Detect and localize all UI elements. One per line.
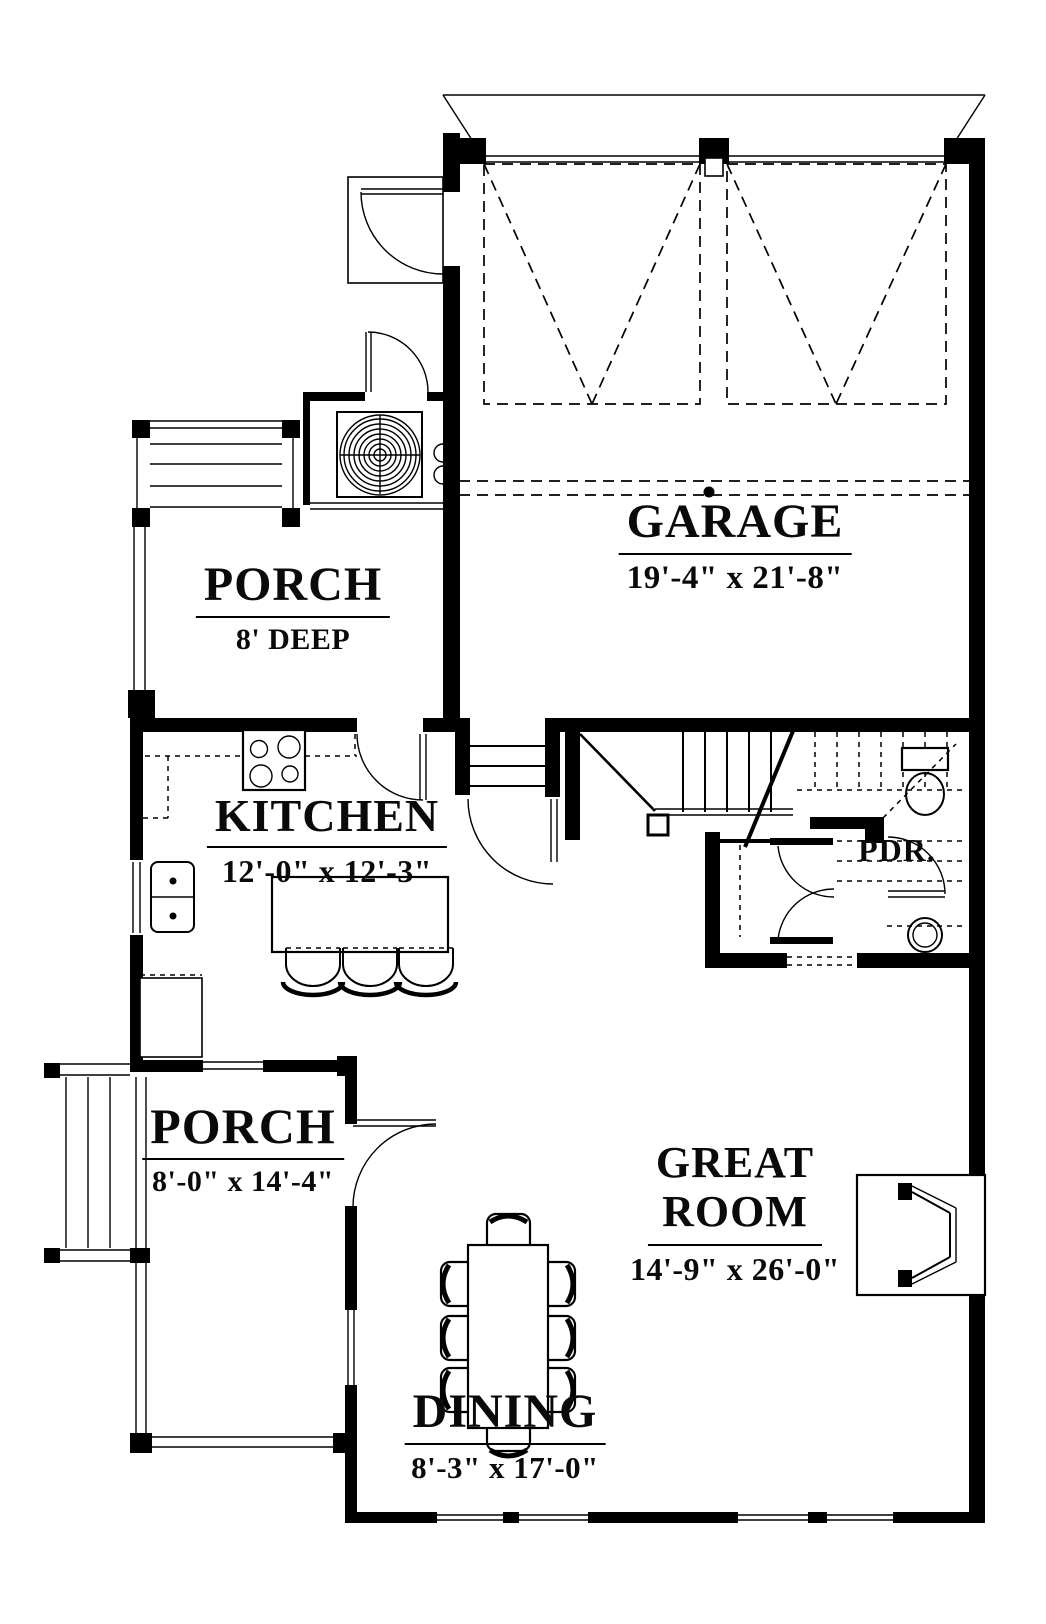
dining-dims: 8'-3" x 17'-0" [405, 1452, 606, 1483]
floor-plan-linework [0, 0, 1046, 1624]
cooktop [243, 730, 305, 790]
powder-name: PDR. [850, 834, 944, 866]
bar-stools [283, 948, 456, 995]
spiral-stair [337, 412, 422, 497]
garage-roof-outline [443, 95, 985, 140]
upper-porch-entry-steps [132, 421, 300, 508]
kitchen-cabinet [140, 975, 202, 1057]
powder-pedestal-sink [908, 918, 942, 952]
great-room-name-line2: ROOM [656, 1187, 814, 1236]
dining-name: DINING [405, 1388, 606, 1445]
room-label-kitchen: KITCHEN 12'-0" x 12'-3" [207, 793, 447, 887]
garage-entry-steps [470, 746, 545, 786]
great-room-name-line1: GREAT [656, 1138, 814, 1187]
garage-name: GARAGE [619, 498, 852, 555]
kitchen-sink [151, 862, 194, 932]
kitchen-dims: 12'-0" x 12'-3" [207, 855, 447, 887]
hall-cased-opening [787, 957, 857, 965]
lower-porch-steps [60, 1064, 130, 1261]
kitchen-name: KITCHEN [207, 793, 447, 848]
garage-door-right [727, 164, 946, 404]
garage-door-left [484, 164, 700, 404]
room-label-upper-porch: PORCH 8' DEEP [196, 561, 390, 655]
garage-center-pier-footing [705, 158, 723, 176]
room-label-great-room: GREAT ROOM 14'-9" x 26'-0" [630, 1138, 840, 1285]
fireplace [857, 1175, 985, 1295]
garage-dims: 19'-4" x 21'-8" [619, 562, 852, 595]
lower-porch-name: PORCH [142, 1101, 344, 1160]
wall-mounted-meters [434, 444, 443, 484]
upper-porch-dims: 8' DEEP [196, 625, 390, 655]
great-room-dims: 14'-9" x 26'-0" [630, 1253, 840, 1285]
mud-hall-door [468, 799, 557, 884]
room-label-garage: GARAGE 19'-4" x 21'-8" [619, 498, 852, 595]
garage-side-stoop [348, 177, 443, 283]
room-label-dining: DINING 8'-3" x 17'-0" [405, 1388, 606, 1483]
floor-plan: GARAGE 19'-4" x 21'-8" PORCH 8' DEEP KIT… [0, 0, 1046, 1624]
closet-double-doors [778, 846, 834, 940]
porch-dining-door [353, 1120, 436, 1207]
upper-porch-name: PORCH [196, 561, 390, 618]
lower-porch-dims: 8'-0" x 14'-4" [142, 1167, 344, 1197]
vestibule-door [366, 332, 428, 392]
room-label-powder: PDR. [850, 834, 944, 866]
room-label-lower-porch: PORCH 8'-0" x 14'-4" [142, 1101, 344, 1197]
